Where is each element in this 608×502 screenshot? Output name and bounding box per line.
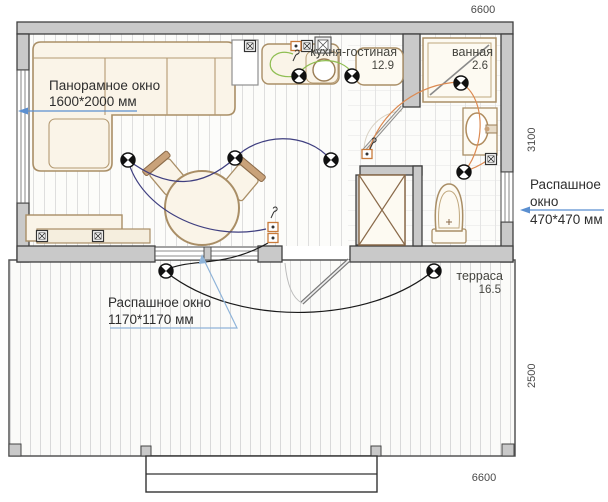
window-bottom-casement <box>155 247 258 260</box>
ceiling-light-icon <box>457 165 471 179</box>
wall-right-upper <box>501 34 513 172</box>
window-right-casement <box>501 172 513 222</box>
bathroom-area: 2.6 <box>472 60 488 72</box>
ceiling-light-icon <box>345 69 359 83</box>
socket-icon <box>362 150 372 159</box>
ceiling-light-icon <box>454 76 468 90</box>
ceiling-light-icon <box>292 69 306 83</box>
terrace-steps <box>146 456 377 492</box>
arrow-left-icon <box>520 207 530 214</box>
ceiling-light-icon <box>228 151 242 165</box>
ceiling-light-icon <box>324 153 338 167</box>
casement-large-size: 1170*1170 мм <box>108 312 194 327</box>
floor-plan-svg: кухня-гостиная 12.9 ванная 2.6 терраса 1… <box>0 0 608 502</box>
ceiling-light-icon <box>121 153 135 167</box>
dining-table <box>165 171 239 245</box>
window-left-panoramic <box>17 70 29 203</box>
dimension-bottom: 6600 <box>472 472 496 484</box>
kitchen-living-area: 12.9 <box>372 60 394 72</box>
outlet-icon <box>486 154 497 165</box>
wall-toilet-left <box>413 166 422 246</box>
terrace-deck <box>9 260 515 456</box>
casement-small-title-1: Распашное <box>530 177 601 192</box>
casement-large-title: Распашное окно <box>108 295 211 310</box>
wall-top <box>17 22 513 34</box>
wall-bottom-right <box>350 246 513 262</box>
outlet-icon <box>37 231 48 242</box>
dimension-right-lower: 2500 <box>526 364 538 388</box>
dimension-top: 6600 <box>471 4 495 16</box>
wall-left-upper <box>17 34 29 70</box>
terrace-label: терраса <box>456 269 503 283</box>
annotation-casement-window-small: Распашное окно 470*470 мм <box>520 177 604 227</box>
bathroom-label: ванная <box>452 45 493 59</box>
outlet-icon <box>245 41 256 52</box>
ceiling-light-icon <box>159 264 173 278</box>
wall-bottom-left <box>17 246 155 262</box>
floor-plan-page: кухня-гостиная 12.9 ванная 2.6 терраса 1… <box>0 0 608 502</box>
dimension-right-upper: 3100 <box>526 128 538 152</box>
wardrobe-cabinet <box>359 175 405 245</box>
wall-bottom-mid <box>258 246 282 262</box>
socket-icon <box>268 223 278 232</box>
casement-small-title-2: окно <box>530 194 558 209</box>
panoramic-window-title: Панорамное окно <box>49 78 160 93</box>
kitchen-living-label: кухня-гостиная <box>310 45 397 59</box>
ceiling-light-icon <box>427 264 441 278</box>
panoramic-window-size: 1600*2000 мм <box>49 94 137 109</box>
socket-icon <box>291 42 301 51</box>
outlet-icon <box>93 231 104 242</box>
casement-small-size: 470*470 мм <box>530 212 603 227</box>
terrace-area: 16.5 <box>479 284 501 296</box>
socket-icon <box>268 234 278 243</box>
